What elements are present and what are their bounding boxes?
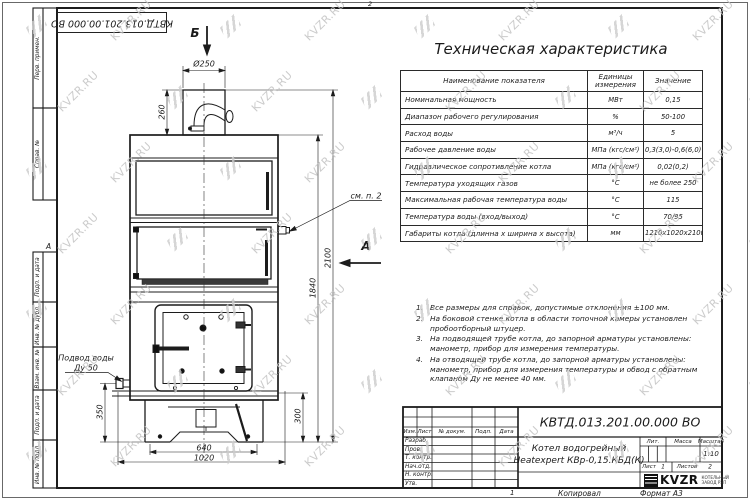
scale-value: 1:10 bbox=[703, 450, 719, 458]
col-header-value: Значение bbox=[644, 71, 703, 92]
table-row: Температура воды (вход/выход)°С70/95 bbox=[401, 208, 703, 225]
cell-parameter: Номинальная мощность bbox=[401, 92, 588, 109]
frame-column-label: Подп. и дата bbox=[35, 395, 41, 435]
cell-value: 70/95 bbox=[644, 208, 703, 225]
boiler-front-view bbox=[112, 90, 290, 442]
table-row: Температура уходящих газов°Сне более 250 bbox=[401, 175, 703, 192]
dim-diameter: Ø250 bbox=[193, 60, 215, 69]
title-block-col-header: Дата bbox=[499, 429, 513, 435]
cell-value: 50-100 bbox=[644, 108, 703, 125]
cell-units: % bbox=[588, 108, 644, 125]
title-block-col-header: Подп. bbox=[475, 429, 492, 435]
view-b-label: Б bbox=[190, 26, 199, 40]
water-inlet-label-line2: Ду 50 bbox=[74, 364, 98, 373]
col-header-name: Наименование показателя bbox=[401, 71, 588, 92]
kvzr-logo-icon bbox=[644, 474, 658, 487]
title-block-row-label: Н. контр. bbox=[405, 472, 433, 478]
title-block-row-label: Утв. bbox=[405, 481, 417, 487]
chimney-elbow bbox=[189, 104, 234, 131]
brand-name: KVZR bbox=[660, 473, 699, 487]
cell-value: 0,02(0,2) bbox=[644, 158, 703, 175]
frame-column-label: Подп. и дата bbox=[35, 257, 41, 297]
mass-label: Масса bbox=[674, 439, 692, 445]
doc-code-rotated: КВТД.013.201.00.000 ВО bbox=[51, 17, 173, 28]
title-block-col-header: № докум. bbox=[438, 429, 465, 435]
tech-table-header-row: Наименование показателя Единицы измерени… bbox=[401, 71, 703, 92]
sheets-label: Листов bbox=[677, 464, 698, 470]
note-item: 3.На подводящей трубе котла, до запорной… bbox=[407, 334, 719, 354]
frame-column-label: Справ. № bbox=[35, 140, 41, 168]
see-note-callout: см. п. 2 bbox=[351, 192, 382, 201]
scale-label: Масштаб bbox=[698, 439, 724, 445]
cell-parameter: Гидравлическое сопротивление котла bbox=[401, 158, 588, 175]
sheet-label: Лист bbox=[642, 464, 656, 470]
note-text: Все размеры для справок, допустимые откл… bbox=[430, 303, 716, 313]
frame-column-label: Перв. примен. bbox=[35, 36, 41, 80]
leaders-and-view-arrows bbox=[65, 26, 382, 381]
cell-value: 5 bbox=[644, 125, 703, 142]
dim-feet-span: 640 bbox=[196, 444, 211, 453]
cell-value: 0,3(3,0)-0,6(6,0) bbox=[644, 142, 703, 159]
copied-label: Копировал bbox=[558, 489, 601, 498]
frame-column-label: Инв. № дубл. bbox=[35, 305, 41, 345]
dim-chimney-height: 260 bbox=[158, 104, 167, 119]
table-row: Рабочее давление водыМПа (кгс/см²)0,3(3,… bbox=[401, 142, 703, 159]
note-item: 2.На боковой стенке котла в области топо… bbox=[407, 314, 719, 334]
table-row: Гидравлическое сопротивление котлаМПа (к… bbox=[401, 158, 703, 175]
note-text: На отводящей трубе котла, до запорной ар… bbox=[430, 355, 716, 384]
table-row: Номинальная мощностьМВт0,15 bbox=[401, 92, 703, 109]
cell-parameter: Максимальная рабочая температура воды bbox=[401, 192, 588, 209]
notes-list: 1.Все размеры для справок, допустимые от… bbox=[407, 303, 719, 385]
dim-base-height: 300 bbox=[294, 408, 303, 423]
cell-parameter: Рабочее давление воды bbox=[401, 142, 588, 159]
title-block-col-header: Изм. bbox=[404, 429, 417, 435]
note-item: 1.Все размеры для справок, допустимые от… bbox=[407, 303, 719, 313]
title-block-row-label: Т. контр. bbox=[405, 455, 432, 461]
water-inlet-label-line1: Подвод воды bbox=[58, 354, 114, 363]
cell-units: °С bbox=[588, 192, 644, 209]
top-edge-marker: 2 bbox=[368, 0, 372, 8]
note-number: 2. bbox=[407, 314, 430, 334]
col-header-units: Единицы измерения bbox=[588, 71, 644, 92]
note-number: 4. bbox=[407, 355, 430, 384]
tech-table-body: Номинальная мощностьМВт0,15Диапазон рабо… bbox=[401, 92, 703, 242]
table-row: Диапазон рабочего регулирования%50-100 bbox=[401, 108, 703, 125]
cell-units: мм bbox=[588, 225, 644, 242]
company-logo: KVZR КОТЕЛЬНЫЙ ЗАВОД РЭП bbox=[644, 474, 720, 486]
dim-body-height: 1840 bbox=[309, 278, 318, 298]
title-block-col-header: Лист bbox=[418, 429, 432, 435]
cell-units: МПа (кгс/см²) bbox=[588, 158, 644, 175]
cell-value: не более 250 bbox=[644, 175, 703, 192]
cell-parameter: Диапазон рабочего регулирования bbox=[401, 108, 588, 125]
cell-units: °С bbox=[588, 175, 644, 192]
frame-column-label: Инв. № подл. bbox=[35, 444, 41, 484]
cell-value: 115 bbox=[644, 192, 703, 209]
table-row: Максимальная рабочая температура воды°С1… bbox=[401, 192, 703, 209]
format-label: Формат А3 bbox=[640, 489, 683, 498]
tech-table: Наименование показателя Единицы измерени… bbox=[400, 70, 703, 242]
zone-marker: А bbox=[46, 242, 51, 251]
bottom-edge-marker: 1 bbox=[510, 489, 514, 497]
note-number: 3. bbox=[407, 334, 430, 354]
cell-parameter: Расход воды bbox=[401, 125, 588, 142]
product-name-line1: Котел водогрейный bbox=[532, 444, 627, 454]
sheet-value: 1 bbox=[661, 464, 665, 471]
company-name-line2: ЗАВОД РЭП bbox=[702, 480, 729, 485]
note-item: 4.На отводящей трубе котла, до запорной … bbox=[407, 355, 719, 384]
title-block-row-label: Пров. bbox=[405, 447, 422, 453]
company-name: КОТЕЛЬНЫЙ ЗАВОД РЭП bbox=[702, 475, 729, 485]
dim-total-height: 2100 bbox=[324, 248, 333, 268]
title-block-row-label: Разраб. bbox=[405, 438, 428, 444]
product-name-line2: Heatexpert КВр-0,15.КБД(К) bbox=[514, 456, 645, 466]
note-number: 1. bbox=[407, 303, 430, 313]
view-a-label: А bbox=[361, 239, 370, 253]
table-row: Габариты котла (длинна х ширина х высота… bbox=[401, 225, 703, 242]
cell-value: 0,15 bbox=[644, 92, 703, 109]
cell-units: °С bbox=[588, 208, 644, 225]
cell-parameter: Температура уходящих газов bbox=[401, 175, 588, 192]
note-text: На боковой стенке котла в области топочн… bbox=[430, 314, 716, 334]
cell-parameter: Габариты котла (длинна х ширина х высота… bbox=[401, 225, 588, 242]
cell-parameter: Температура воды (вход/выход) bbox=[401, 208, 588, 225]
doc-code-box: КВТД.013.201.00.000 ВО bbox=[57, 12, 167, 33]
lit-label: Лит. bbox=[647, 439, 660, 445]
dim-base-width: 1020 bbox=[194, 454, 214, 463]
table-row: Расход водым³/ч5 bbox=[401, 125, 703, 142]
title-block-row-label: Нач.отд. bbox=[405, 464, 431, 470]
cell-units: МВт bbox=[588, 92, 644, 109]
dimension-lines bbox=[100, 66, 338, 465]
dim-inlet-height: 350 bbox=[96, 404, 105, 419]
sheets-value: 2 bbox=[708, 464, 712, 471]
cell-units: МПа (кгс/см²) bbox=[588, 142, 644, 159]
tech-table-title: Техническая характеристика bbox=[434, 40, 667, 58]
drawing-sheet: КВТД.013.201.00.000 ВО 2 1 Копировал Фор… bbox=[0, 0, 750, 500]
cell-units: м³/ч bbox=[588, 125, 644, 142]
frame-column-label: Взам. инв. № bbox=[35, 349, 41, 388]
cell-value: 1210х1020х2100 bbox=[644, 225, 703, 242]
title-block-designation: КВТД.013.201.00.000 ВО bbox=[540, 415, 701, 430]
note-text: На подводящей трубе котла, до запорной а… bbox=[430, 334, 716, 354]
